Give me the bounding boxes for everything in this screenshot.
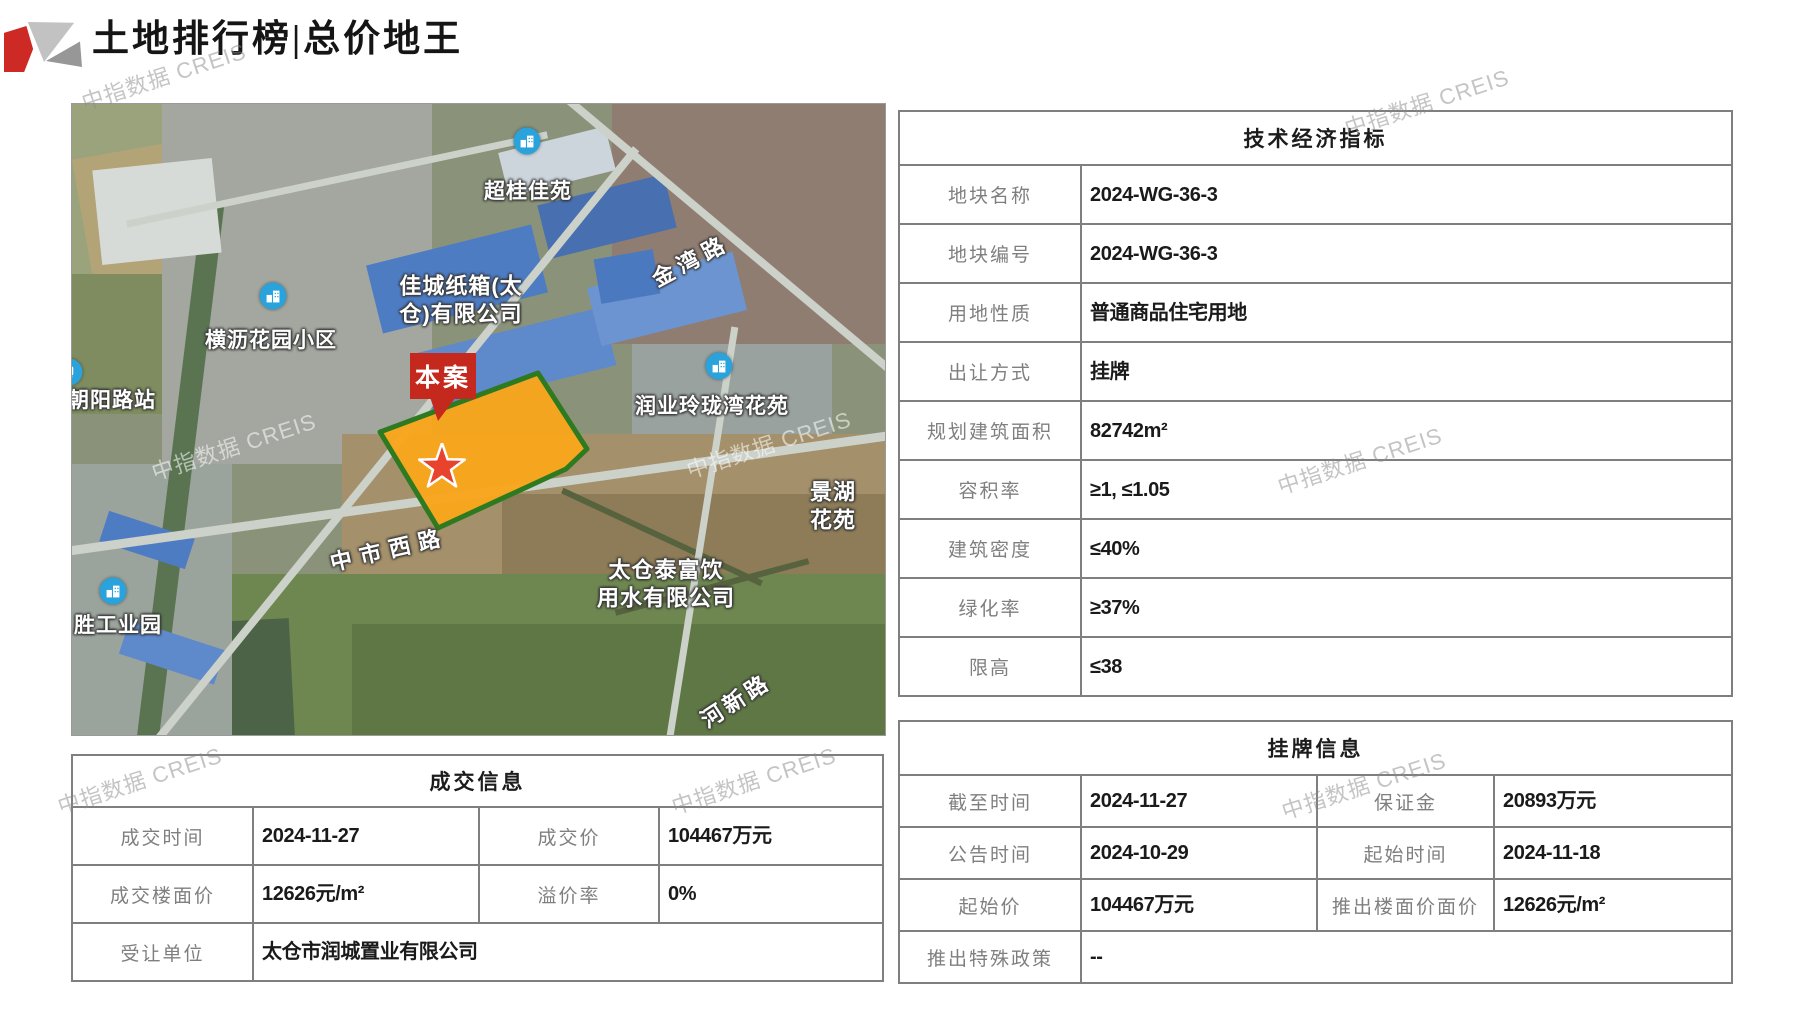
- listing-label: 保证金: [1317, 775, 1494, 827]
- listing-value: 2024-11-18: [1494, 827, 1732, 879]
- deal-value: 太仓市润城置业有限公司: [253, 923, 883, 981]
- listing-value: 12626元/m²: [1494, 879, 1732, 931]
- tech-value: ≥1, ≤1.05: [1081, 460, 1732, 519]
- map-poi-label: 朝阳路站: [71, 388, 156, 414]
- listing-label: 起始价: [899, 879, 1081, 931]
- tech-value: 挂牌: [1081, 342, 1732, 401]
- deal-label: 成交时间: [72, 807, 253, 865]
- deal-label: 成交楼面价: [72, 865, 253, 923]
- map-poi-label: 胜工业园: [74, 613, 162, 639]
- listing-label: 推出特殊政策: [899, 931, 1081, 983]
- site-star-icon: [418, 443, 466, 491]
- listing-value: 20893万元: [1494, 775, 1732, 827]
- tech-label: 用地性质: [899, 283, 1081, 342]
- satellite-map: 超桂佳苑 横沥花园小区 润业玲珑湾花苑 朝阳路站 胜工业园 佳城纸箱(太 仓)有…: [71, 103, 886, 736]
- listing-value: 2024-10-29: [1081, 827, 1317, 879]
- tech-label: 规划建筑面积: [899, 401, 1081, 460]
- listing-info-table: 挂牌信息 截至时间 2024-11-27 保证金 20893万元 公告时间 20…: [898, 720, 1733, 984]
- tech-value: ≥37%: [1081, 578, 1732, 637]
- map-poi-label: 超桂佳苑: [484, 179, 572, 205]
- tech-value: 2024-WG-36-3: [1081, 165, 1732, 224]
- listing-table-title: 挂牌信息: [899, 721, 1732, 775]
- listing-value: 104467万元: [1081, 879, 1317, 931]
- map-area-label: 佳城纸箱(太 仓)有限公司: [399, 273, 522, 328]
- listing-value: 2024-11-27: [1081, 775, 1317, 827]
- deal-label: 受让单位: [72, 923, 253, 981]
- listing-label: 公告时间: [899, 827, 1081, 879]
- building-poi-icon: [260, 283, 287, 310]
- tech-label: 容积率: [899, 460, 1081, 519]
- map-poi-label: 润业玲珑湾花苑: [635, 394, 789, 420]
- tech-label: 出让方式: [899, 342, 1081, 401]
- deal-value: 2024-11-27: [253, 807, 479, 865]
- listing-label: 起始时间: [1317, 827, 1494, 879]
- deal-info-table: 成交信息 成交时间 2024-11-27 成交价 104467万元 成交楼面价 …: [71, 754, 884, 982]
- tech-value: ≤38: [1081, 637, 1732, 696]
- tech-value: 2024-WG-36-3: [1081, 224, 1732, 283]
- tech-label: 限高: [899, 637, 1081, 696]
- map-area-label: 太仓泰富饮 用水有限公司: [597, 557, 735, 612]
- deal-label: 成交价: [479, 807, 659, 865]
- page-title: 土地排行榜|总价地王: [92, 16, 463, 64]
- building-poi-icon: [706, 353, 733, 380]
- listing-value: --: [1081, 931, 1732, 983]
- listing-label: 推出楼面价面价: [1317, 879, 1494, 931]
- site-marker-pointer: [430, 397, 456, 421]
- tech-label: 建筑密度: [899, 519, 1081, 578]
- tech-label: 地块编号: [899, 224, 1081, 283]
- brand-logo-icon: [4, 22, 82, 72]
- listing-label: 截至时间: [899, 775, 1081, 827]
- tech-value: 82742m²: [1081, 401, 1732, 460]
- map-area-label: 景湖花苑: [807, 479, 859, 534]
- deal-value: 12626元/m²: [253, 865, 479, 923]
- report-page: 土地排行榜|总价地王: [0, 0, 1797, 1010]
- building-poi-icon: [514, 128, 541, 155]
- tech-label: 地块名称: [899, 165, 1081, 224]
- deal-value: 104467万元: [659, 807, 883, 865]
- building-poi-icon: [100, 578, 127, 605]
- tech-table-title: 技术经济指标: [899, 111, 1732, 165]
- tech-value: ≤40%: [1081, 519, 1732, 578]
- deal-table-title: 成交信息: [72, 755, 883, 807]
- tech-indicators-table: 技术经济指标 地块名称2024-WG-36-3 地块编号2024-WG-36-3…: [898, 110, 1733, 697]
- site-marker: 本案: [410, 353, 476, 399]
- deal-value: 0%: [659, 865, 883, 923]
- deal-label: 溢价率: [479, 865, 659, 923]
- map-poi-label: 横沥花园小区: [205, 328, 337, 354]
- tech-value: 普通商品住宅用地: [1081, 283, 1732, 342]
- tech-label: 绿化率: [899, 578, 1081, 637]
